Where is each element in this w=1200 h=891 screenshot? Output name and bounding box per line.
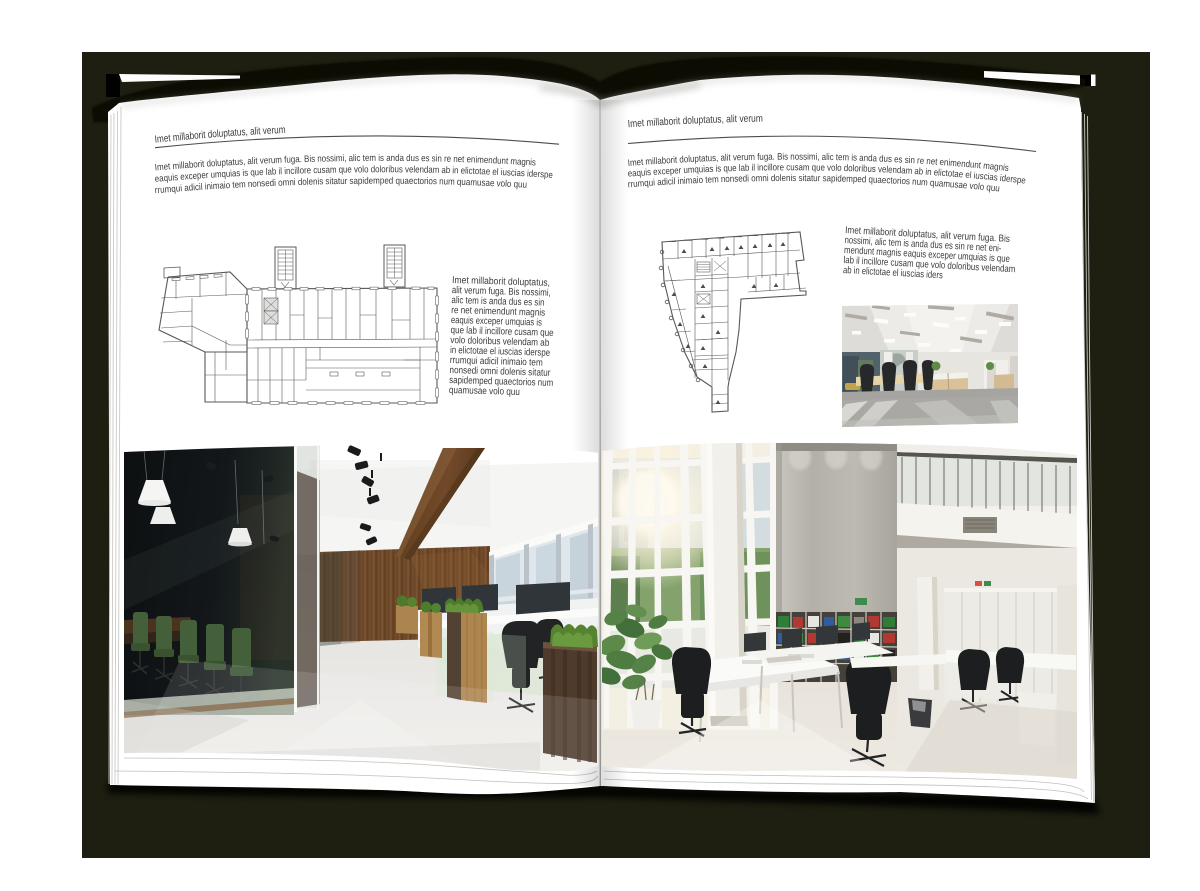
svg-text:quamusae volo quu: quamusae volo quu	[449, 385, 520, 398]
